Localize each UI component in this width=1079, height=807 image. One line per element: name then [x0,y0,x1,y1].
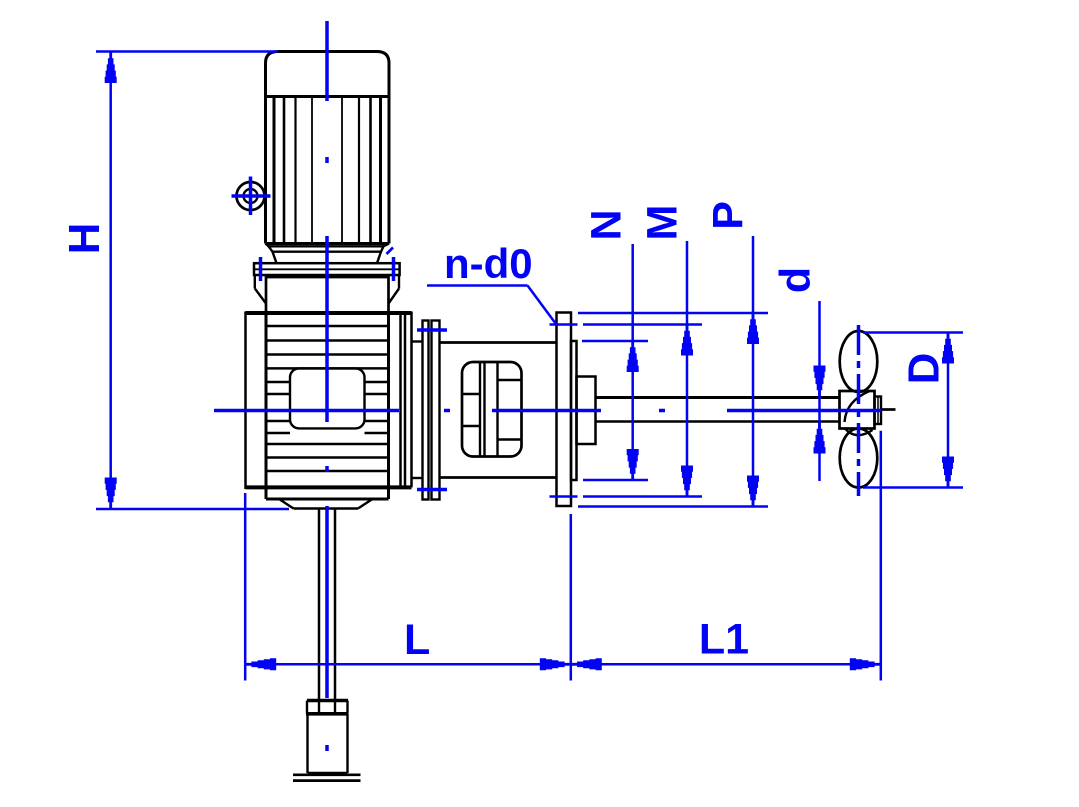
svg-text:M: M [638,205,686,241]
svg-text:L1: L1 [699,616,749,664]
svg-text:d: d [771,267,819,293]
svg-text:N: N [582,209,630,240]
svg-text:P: P [705,201,753,230]
svg-text:L: L [404,616,430,664]
svg-text:n-d0: n-d0 [444,240,533,287]
svg-text:H: H [60,223,109,255]
svg-text:D: D [899,353,948,385]
